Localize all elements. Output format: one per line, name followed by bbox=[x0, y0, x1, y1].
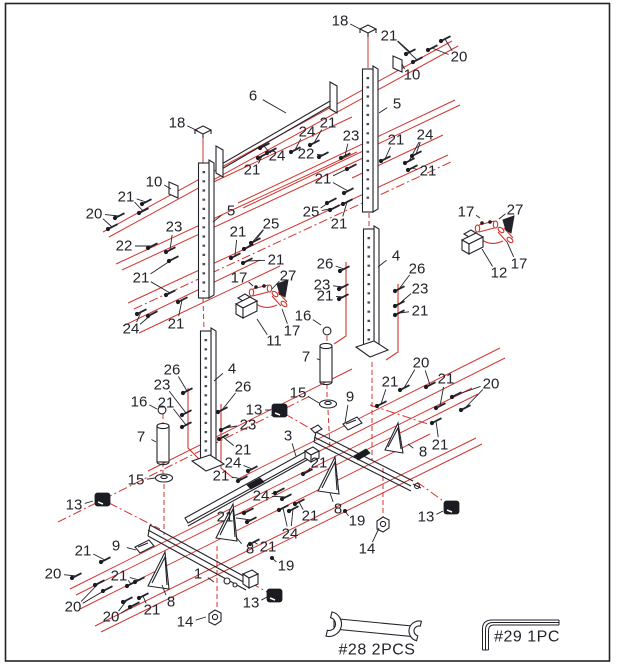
bolt-head-icon bbox=[410, 154, 414, 158]
bolt-head-icon bbox=[434, 406, 438, 410]
part-label-5: 5 bbox=[227, 203, 235, 220]
part-label-13: 13 bbox=[418, 509, 435, 526]
part-label-7: 7 bbox=[137, 429, 145, 446]
part-label-21: 21 bbox=[133, 270, 150, 287]
part-label-27: 27 bbox=[280, 268, 297, 285]
bolt-head-icon bbox=[342, 191, 346, 195]
part-label-13: 13 bbox=[246, 402, 263, 419]
bolt-head-icon bbox=[164, 293, 168, 297]
pin-dot-icon bbox=[343, 509, 347, 513]
washer-right bbox=[320, 400, 337, 408]
hexkey-qty-label: #29 1PC bbox=[494, 629, 560, 646]
bolt-head-icon bbox=[167, 259, 171, 263]
part-label-21: 21 bbox=[432, 437, 449, 454]
cylinder-right bbox=[320, 343, 332, 384]
part-label-4: 4 bbox=[392, 248, 400, 265]
bolt-head-icon bbox=[280, 497, 284, 501]
part-label-21: 21 bbox=[168, 316, 185, 333]
bolt-head-icon bbox=[289, 150, 293, 154]
part-label-4: 4 bbox=[228, 361, 236, 378]
part-label-17: 17 bbox=[458, 204, 475, 221]
part-label-23: 23 bbox=[343, 128, 360, 145]
bolt-head-icon bbox=[219, 428, 223, 432]
part-label-22: 22 bbox=[116, 238, 133, 255]
part-label-15: 15 bbox=[290, 385, 307, 402]
part-label-19: 19 bbox=[278, 558, 295, 575]
part-label-21: 21 bbox=[412, 303, 429, 320]
part-label-12: 12 bbox=[491, 265, 508, 282]
bolt-head-icon bbox=[164, 250, 168, 254]
bolt-head-icon bbox=[146, 246, 150, 250]
bolt-head-icon bbox=[393, 289, 397, 293]
bolt-head-icon bbox=[229, 256, 233, 260]
bolt-head-icon bbox=[146, 314, 150, 318]
bolt-head-icon bbox=[242, 511, 246, 515]
part-label-16: 16 bbox=[295, 308, 312, 325]
bolt-head-icon bbox=[217, 437, 221, 441]
part-label-21: 21 bbox=[217, 509, 234, 526]
bolt-head-icon bbox=[180, 425, 184, 429]
bolt-head-icon bbox=[459, 408, 463, 412]
bolt-head-icon bbox=[424, 385, 428, 389]
part-label-15: 15 bbox=[128, 472, 145, 489]
bolt-head-icon bbox=[317, 155, 321, 159]
part-label-13: 13 bbox=[66, 497, 83, 514]
part-label-21: 21 bbox=[244, 162, 261, 179]
bolt-head-icon bbox=[341, 202, 345, 206]
cylinder-left bbox=[157, 423, 169, 464]
bolt-head-icon bbox=[137, 211, 141, 215]
bolt-head-icon bbox=[379, 159, 383, 163]
part-label-21: 21 bbox=[260, 539, 277, 556]
bolt-head-icon bbox=[128, 605, 132, 609]
part-label-19: 19 bbox=[349, 513, 366, 530]
part-label-8: 8 bbox=[334, 501, 342, 518]
bolt-head-icon bbox=[93, 583, 97, 587]
bolt-head-icon bbox=[248, 542, 252, 546]
part-label-21: 21 bbox=[268, 252, 285, 269]
bolt-head-icon bbox=[406, 168, 410, 172]
part-label-17: 17 bbox=[284, 323, 301, 340]
bolt-head-icon bbox=[180, 413, 184, 417]
part-label-21: 21 bbox=[438, 371, 455, 388]
bolt-head-icon bbox=[328, 208, 332, 212]
part-label-21: 21 bbox=[230, 224, 247, 241]
part-label-24: 24 bbox=[253, 488, 270, 505]
crossbar-end-plate-left bbox=[216, 146, 223, 177]
part-label-21: 21 bbox=[144, 602, 161, 619]
part-label-26: 26 bbox=[317, 256, 334, 273]
part-label-17: 17 bbox=[511, 256, 528, 273]
bolt-head-icon bbox=[101, 589, 105, 593]
bolt-head-icon bbox=[258, 146, 262, 150]
part-label-6: 6 bbox=[249, 88, 257, 105]
part-label-3: 3 bbox=[284, 428, 292, 445]
bolt-head-icon bbox=[403, 161, 407, 165]
part-label-21: 21 bbox=[111, 568, 128, 585]
ball-right bbox=[323, 327, 331, 335]
part-label-14: 14 bbox=[177, 614, 194, 631]
bolt-head-icon bbox=[245, 520, 249, 524]
part-label-11: 11 bbox=[266, 333, 282, 350]
bolt-head-icon bbox=[293, 502, 297, 506]
bolt-head-icon bbox=[411, 60, 415, 64]
part-label-20: 20 bbox=[413, 355, 430, 372]
part-label-23: 23 bbox=[154, 377, 171, 394]
part-label-5: 5 bbox=[393, 96, 401, 113]
upright-post-5-right bbox=[363, 66, 379, 212]
pin-dot-icon bbox=[270, 556, 274, 560]
part-label-10: 10 bbox=[404, 67, 421, 84]
crossbar-end-plate-right bbox=[330, 82, 337, 113]
part-label-21: 21 bbox=[213, 468, 230, 485]
bolt-head-icon bbox=[133, 580, 137, 584]
part-label-20: 20 bbox=[103, 609, 120, 626]
bolt-head-icon bbox=[325, 201, 329, 205]
assembly-diagram: 1821201065182124232221242124211021205232… bbox=[0, 0, 617, 667]
part-label-21: 21 bbox=[381, 28, 398, 45]
bolt-head-icon bbox=[404, 52, 408, 56]
part-label-24: 24 bbox=[269, 148, 286, 165]
part-label-21: 21 bbox=[317, 288, 334, 305]
part-label-21: 21 bbox=[382, 374, 399, 391]
bolt-head-icon bbox=[137, 596, 141, 600]
part-label-21: 21 bbox=[302, 508, 319, 525]
bolt-head-icon bbox=[236, 479, 240, 483]
bolt-head-icon bbox=[249, 241, 253, 245]
part-label-24: 24 bbox=[282, 526, 299, 543]
bolt-head-icon bbox=[345, 167, 349, 171]
bolt-head-icon bbox=[430, 421, 434, 425]
bolt-head-icon bbox=[337, 297, 341, 301]
part-label-23: 23 bbox=[412, 281, 429, 298]
part-label-20: 20 bbox=[451, 49, 468, 66]
bolt-head-icon bbox=[121, 600, 125, 604]
bolt-head-icon bbox=[125, 584, 129, 588]
part-label-9: 9 bbox=[346, 389, 354, 406]
part-label-17: 17 bbox=[231, 270, 248, 287]
washer-left bbox=[156, 474, 173, 482]
part-label-20: 20 bbox=[65, 599, 82, 616]
bolt-head-icon bbox=[99, 560, 103, 564]
bolt-head-icon bbox=[216, 410, 220, 414]
bolt-head-icon bbox=[140, 202, 144, 206]
part-label-21: 21 bbox=[158, 395, 175, 412]
bolt-head-icon bbox=[393, 304, 397, 308]
part-label-21: 21 bbox=[315, 171, 332, 188]
bolt-head-icon bbox=[393, 313, 397, 317]
part-label-20: 20 bbox=[45, 566, 62, 583]
bolt-head-icon bbox=[287, 509, 291, 513]
bolt-head-icon bbox=[337, 287, 341, 291]
bolt-head-icon bbox=[241, 261, 245, 265]
part-label-18: 18 bbox=[169, 115, 186, 132]
bolt-head-icon bbox=[301, 472, 305, 476]
wrench-qty-label: #28 2PCS bbox=[339, 642, 416, 659]
bolt-head-icon bbox=[256, 156, 260, 160]
part-label-23: 23 bbox=[166, 219, 183, 236]
part-label-21: 21 bbox=[311, 455, 328, 472]
bolt-head-icon bbox=[398, 388, 402, 392]
bolt-head-icon bbox=[273, 491, 277, 495]
part-label-21: 21 bbox=[420, 163, 437, 180]
part-label-20: 20 bbox=[86, 206, 103, 223]
bolt-head-icon bbox=[246, 469, 250, 473]
part-label-21: 21 bbox=[331, 216, 348, 233]
part-label-21: 21 bbox=[118, 189, 135, 206]
part-label-21: 21 bbox=[388, 132, 405, 149]
part-label-8: 8 bbox=[419, 444, 427, 461]
bolt-head-icon bbox=[106, 227, 110, 231]
part-label-25: 25 bbox=[303, 204, 320, 221]
part-label-18: 18 bbox=[332, 13, 349, 30]
bolt-head-icon bbox=[450, 395, 454, 399]
bolt-head-icon bbox=[181, 391, 185, 395]
bolt-head-icon bbox=[176, 300, 180, 304]
page-border bbox=[6, 4, 610, 662]
part-label-24: 24 bbox=[299, 124, 316, 141]
part-label-25: 25 bbox=[263, 216, 280, 233]
bolt-head-icon bbox=[135, 312, 139, 316]
part-label-26: 26 bbox=[235, 379, 252, 396]
part-label-21: 21 bbox=[75, 543, 92, 560]
upright-post-5-left bbox=[199, 160, 215, 298]
part-label-27: 27 bbox=[507, 202, 524, 219]
part-label-23: 23 bbox=[240, 417, 257, 434]
bolt-head-icon bbox=[439, 39, 443, 43]
part-label-8: 8 bbox=[167, 594, 175, 611]
part-label-1: 1 bbox=[194, 566, 202, 583]
part-label-7: 7 bbox=[302, 349, 310, 366]
part-label-14: 14 bbox=[359, 541, 376, 558]
part-label-21: 21 bbox=[320, 115, 337, 132]
part-label-16: 16 bbox=[131, 394, 148, 411]
bolt-head-icon bbox=[338, 269, 342, 273]
diagram-page: 1821201065182124232221242124211021205232… bbox=[0, 0, 617, 667]
part-label-24: 24 bbox=[123, 321, 140, 338]
part-label-22: 22 bbox=[298, 146, 315, 163]
part-label-20: 20 bbox=[483, 376, 500, 393]
bolt-head-icon bbox=[113, 216, 117, 220]
bolt-head-icon bbox=[375, 404, 379, 408]
part-label-10: 10 bbox=[146, 174, 163, 191]
bolt-head-icon bbox=[339, 156, 343, 160]
bolt-head-icon bbox=[426, 48, 430, 52]
bolt-head-icon bbox=[277, 508, 281, 512]
part-label-26: 26 bbox=[409, 261, 426, 278]
bolt-head-icon bbox=[70, 576, 74, 580]
part-label-24: 24 bbox=[417, 127, 434, 144]
part-label-9: 9 bbox=[112, 538, 120, 555]
part-label-13: 13 bbox=[243, 595, 260, 612]
bolt-head-icon bbox=[242, 247, 246, 251]
